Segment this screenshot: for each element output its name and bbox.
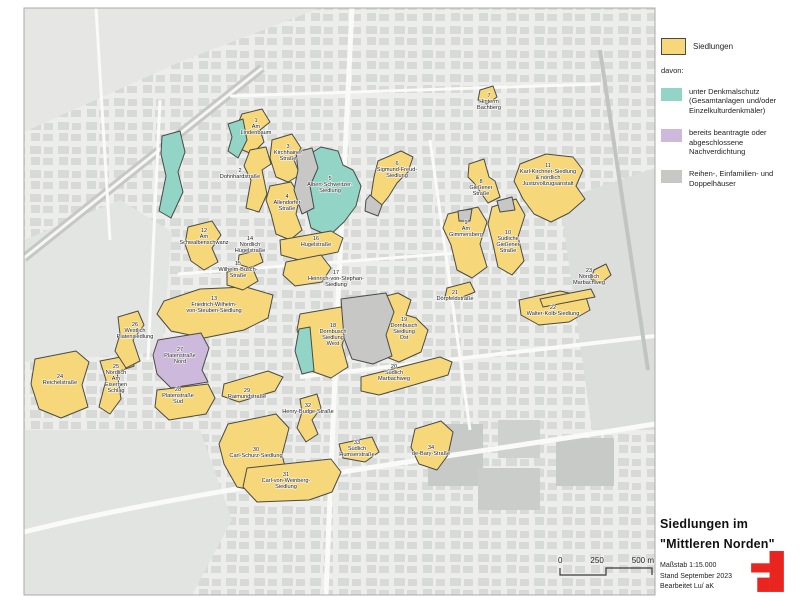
- nachverdichtung-swatch: [661, 129, 682, 142]
- legend-row-reihenhaeuser: Reihen-, Einfamilien- und Doppelhäuser: [661, 169, 793, 188]
- map-sheet: 1AmLindenbaum2Dohnhardstraße3Kirchhainer…: [0, 0, 800, 600]
- siedlungen-swatch: [661, 38, 686, 55]
- scale-label-500: 500 m: [632, 556, 654, 565]
- stadt-frankfurt-logo-icon: [745, 551, 790, 595]
- legend-row-siedlungen: Siedlungen: [661, 38, 793, 55]
- reihenhaeuser-swatch: [661, 170, 682, 183]
- nachverdichtung-label: bereits beantragte oder abgeschlossene N…: [689, 128, 793, 156]
- reihenhaeuser-label: Reihen-, Einfamilien- und Doppelhäuser: [689, 169, 793, 188]
- legend: Siedlungen davon: unter Denkmalschutz (G…: [661, 38, 793, 201]
- denkmalschutz-swatch: [661, 88, 682, 101]
- scale-label-0: 0: [558, 556, 562, 565]
- denkmalschutz-label: unter Denkmalschutz (Gesamtanlagen und/o…: [689, 87, 793, 115]
- siedlungen-label: Siedlungen: [693, 42, 733, 52]
- legend-row-nachverdichtung: bereits beantragte oder abgeschlossene N…: [661, 128, 793, 156]
- scale-bar: 0 250 500 m: [558, 556, 654, 577]
- scale-bar-graphic: [558, 566, 654, 577]
- davon-label: davon:: [661, 66, 793, 75]
- scale-label-250: 250: [590, 556, 603, 565]
- map-title-line1: Siedlungen im: [660, 514, 800, 534]
- legend-row-denkmalschutz: unter Denkmalschutz (Gesamtanlagen und/o…: [661, 87, 793, 115]
